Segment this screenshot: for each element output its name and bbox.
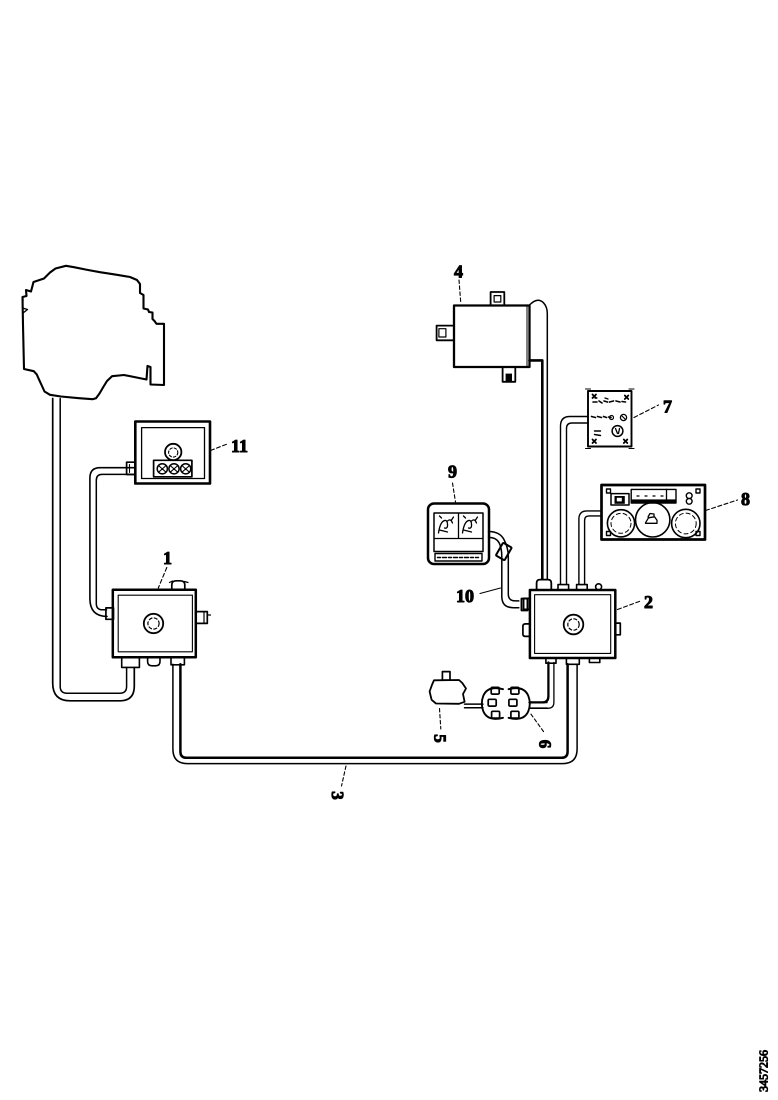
svg-text:5: 5 [431,734,450,743]
svg-text:3457256: 3457256 [757,1050,771,1092]
svg-text:10: 10 [456,586,474,606]
svg-text:3: 3 [328,791,347,800]
svg-text:4: 4 [454,262,463,282]
svg-text:11: 11 [231,436,248,456]
svg-text:7: 7 [663,397,672,417]
svg-text:2: 2 [644,592,653,612]
svg-text:6: 6 [536,740,555,749]
svg-text:9: 9 [448,462,457,482]
svg-text:8: 8 [741,489,750,509]
svg-text:1: 1 [163,548,172,568]
